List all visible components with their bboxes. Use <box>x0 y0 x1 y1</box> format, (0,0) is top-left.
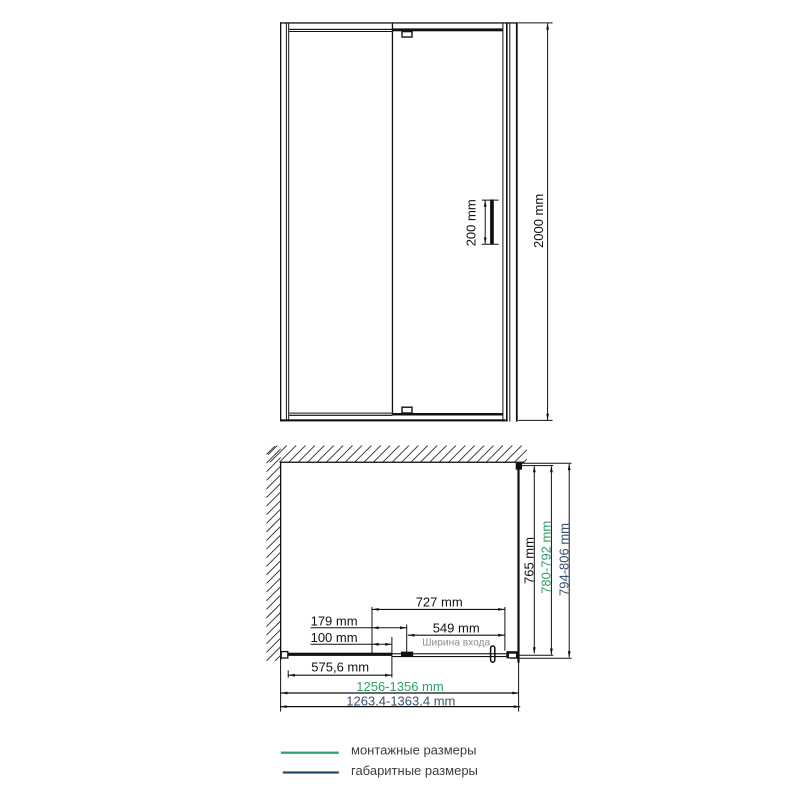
svg-text:549 mm: 549 mm <box>433 621 480 636</box>
svg-text:200 mm: 200 mm <box>464 199 479 246</box>
svg-text:727 mm: 727 mm <box>416 595 463 610</box>
svg-text:575,6 mm: 575,6 mm <box>311 660 369 675</box>
svg-text:монтажные размеры: монтажные размеры <box>351 742 476 757</box>
svg-text:1256-1356 mm: 1256-1356 mm <box>356 679 443 694</box>
svg-text:Ширина входа: Ширина входа <box>422 637 490 648</box>
svg-text:780-792 mm: 780-792 mm <box>539 521 554 594</box>
svg-text:габаритные размеры: габаритные размеры <box>351 763 478 778</box>
svg-text:100 mm: 100 mm <box>311 630 358 645</box>
svg-text:1263,4-1363,4 mm: 1263,4-1363,4 mm <box>346 693 455 708</box>
svg-text:2000 mm: 2000 mm <box>531 194 546 248</box>
svg-text:794-806 mm: 794-806 mm <box>556 523 571 596</box>
svg-text:765 mm: 765 mm <box>522 537 537 584</box>
svg-text:179 mm: 179 mm <box>311 613 358 628</box>
